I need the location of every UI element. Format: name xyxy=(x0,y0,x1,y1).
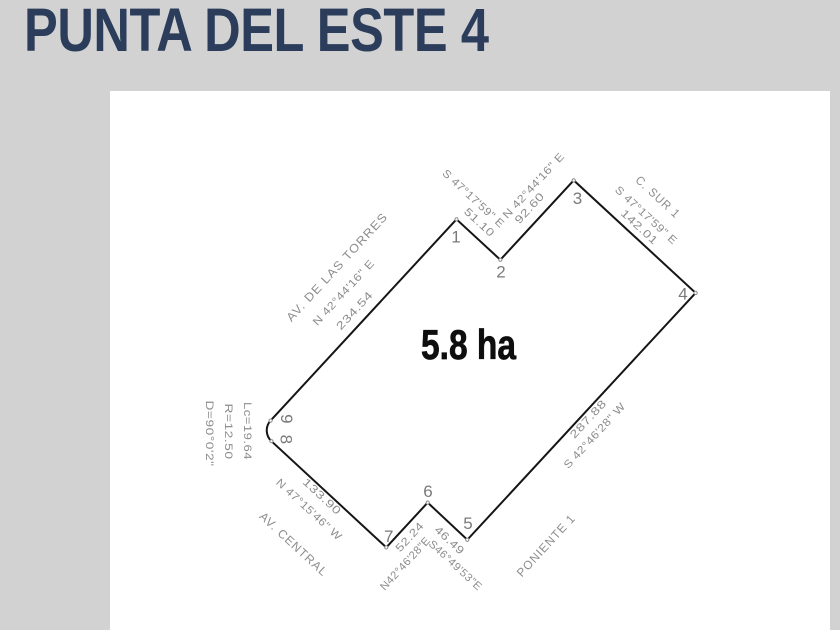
svg-text:6: 6 xyxy=(423,482,432,501)
svg-text:2: 2 xyxy=(496,263,505,282)
svg-text:1: 1 xyxy=(451,228,460,247)
svg-text:5: 5 xyxy=(463,514,472,533)
svg-text:D=90°0'2": D=90°0'2" xyxy=(203,401,215,467)
svg-text:R=12.50: R=12.50 xyxy=(222,404,234,460)
svg-text:8: 8 xyxy=(276,435,295,444)
svg-text:7: 7 xyxy=(384,527,393,546)
svg-text:3: 3 xyxy=(573,189,582,208)
svg-text:4: 4 xyxy=(678,285,687,304)
svg-text:Lc=19.64: Lc=19.64 xyxy=(241,402,253,460)
svg-text:9: 9 xyxy=(277,414,296,423)
svg-text:5.8 ha: 5.8 ha xyxy=(421,321,517,368)
svg-text:PONIENTE 1: PONIENTE 1 xyxy=(514,511,579,579)
